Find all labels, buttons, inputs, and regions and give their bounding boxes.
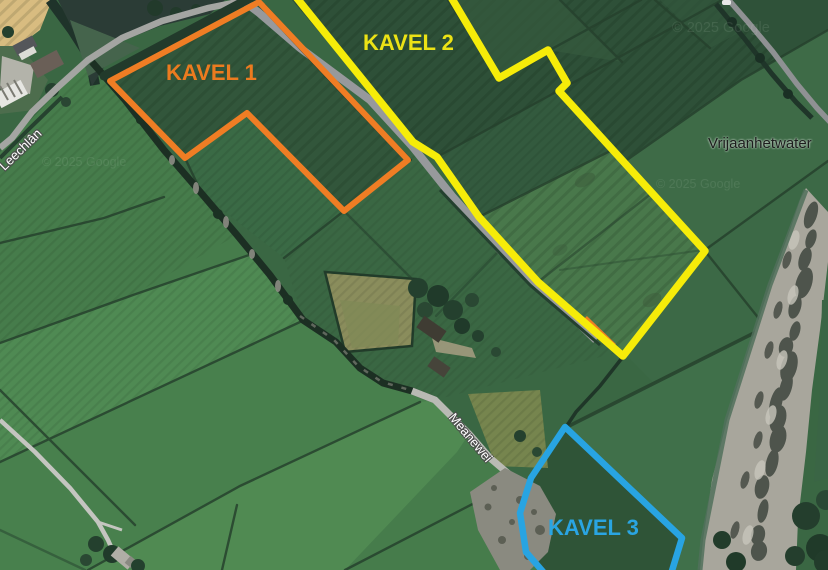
svg-text:© 2025 Google: © 2025 Google bbox=[672, 20, 770, 36]
svg-text:© 2025 Google: © 2025 Google bbox=[656, 177, 740, 191]
svg-text:© 2025 Google: © 2025 Google bbox=[42, 155, 126, 169]
